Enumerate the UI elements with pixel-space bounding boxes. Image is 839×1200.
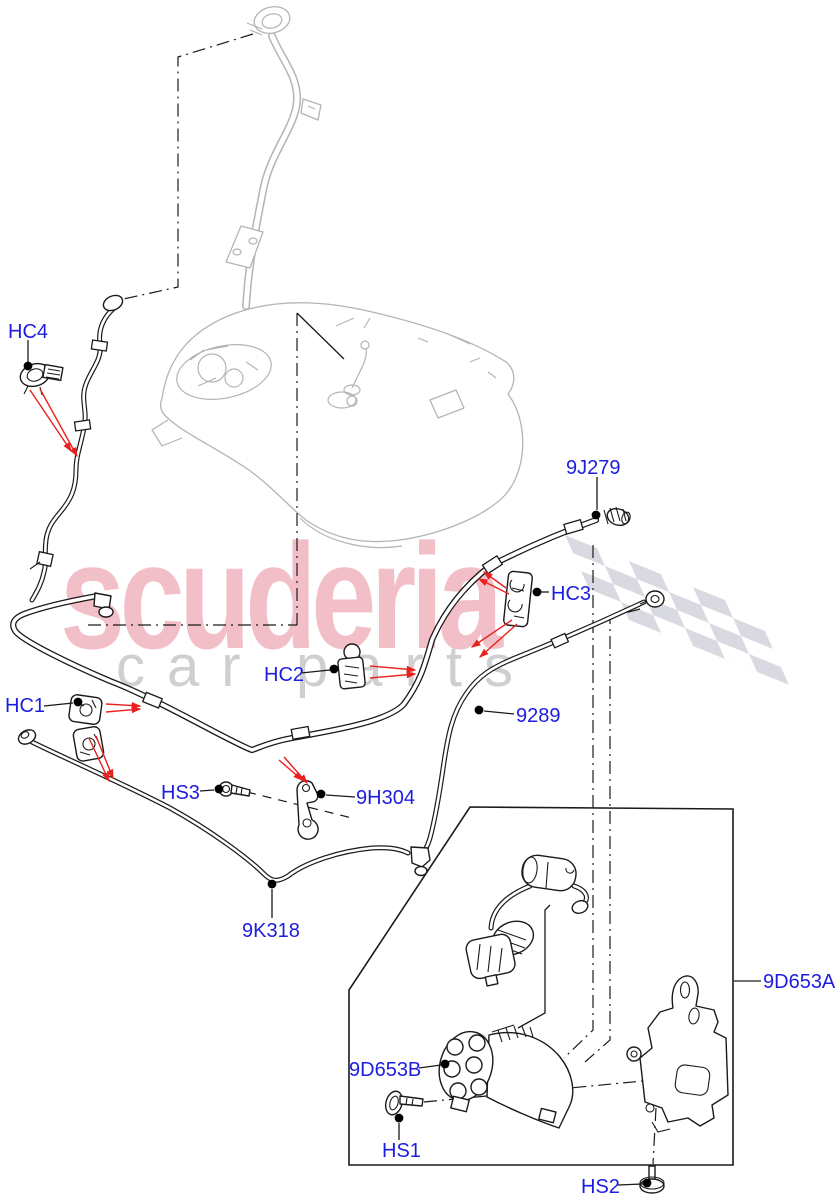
part-label-9D653B[interactable]: 9D653B <box>349 1059 421 1081</box>
part-label-9J279[interactable]: 9J279 <box>566 457 621 479</box>
vapour-pump-hose-assembly <box>465 853 590 986</box>
part-label-9289[interactable]: 9289 <box>516 705 561 727</box>
part-label-HC2[interactable]: HC2 <box>264 664 304 686</box>
checkered-flag <box>565 535 789 685</box>
fuel-lines-diagram: scuderia car parts <box>0 0 839 1200</box>
vapour-pump-9D653B <box>431 1025 572 1128</box>
screw-HS2 <box>640 1166 664 1193</box>
parts-diagram-page: scuderia car parts <box>0 0 839 1200</box>
part-label-HC3[interactable]: HC3 <box>551 583 591 605</box>
screw-HS3 <box>219 782 250 796</box>
clip-HC1 <box>68 694 104 762</box>
clip-HC3 <box>503 571 533 627</box>
part-label-HS1[interactable]: HS1 <box>382 1140 421 1162</box>
part-label-HS2[interactable]: HS2 <box>581 1176 620 1198</box>
fuel-tank-sketch <box>152 303 523 548</box>
part-label-9D653A[interactable]: 9D653A <box>763 971 836 993</box>
part-label-HC1[interactable]: HC1 <box>5 695 45 717</box>
tee-fitting <box>30 552 53 569</box>
filler-pipe-sketch <box>226 3 321 306</box>
screw-HS1 <box>383 1089 423 1116</box>
bracket-9H304 <box>297 781 318 839</box>
mounting-bracket-9D653A <box>627 976 728 1132</box>
part-label-9K318[interactable]: 9K318 <box>242 920 300 942</box>
watermark-tagline-car: car <box>116 634 263 699</box>
part-label-HC4[interactable]: HC4 <box>8 321 48 343</box>
part-label-HS3[interactable]: HS3 <box>161 782 200 804</box>
part-label-9H304[interactable]: 9H304 <box>356 787 415 809</box>
fuel-line-9K318 <box>16 727 408 880</box>
line-end-fitting-9J279 <box>604 506 632 528</box>
